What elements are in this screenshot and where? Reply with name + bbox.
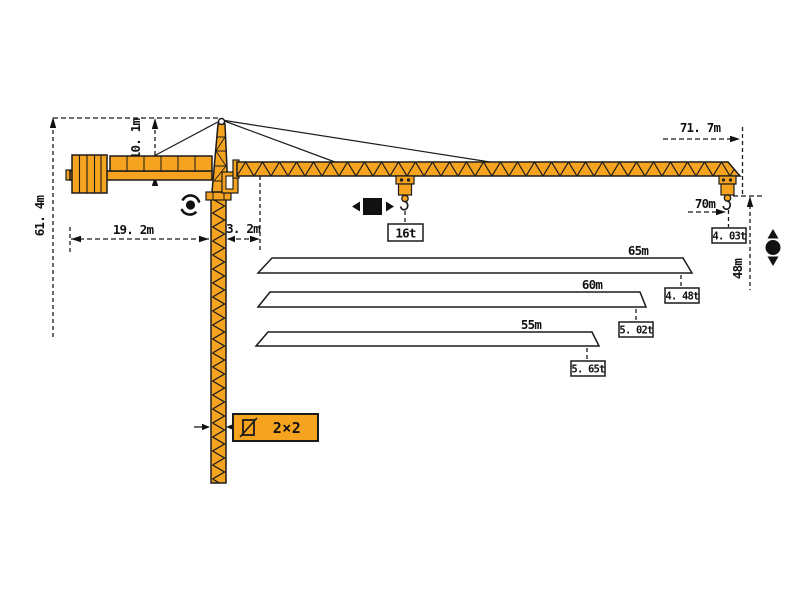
hoist-up-down-icon — [766, 229, 781, 266]
main-jib — [233, 160, 740, 178]
jib-variant-bar — [258, 292, 646, 307]
jib-root-offset-label: 3. 2m — [226, 221, 261, 236]
counterweight-blocks — [72, 155, 107, 193]
jib-variant-load: 5. 02t — [619, 325, 653, 337]
max-load-callout: 16t — [388, 224, 423, 241]
jib-variant-length: 60m — [582, 277, 603, 292]
head-height-label: 10. 1m — [128, 118, 143, 160]
hook — [723, 201, 730, 209]
trolley-travel-icon — [352, 198, 394, 215]
tower-mast — [211, 199, 226, 483]
jib-variant-55m: 55m 5. 65t — [256, 317, 605, 376]
hook-pulley — [724, 195, 730, 201]
hook-pulley — [402, 195, 408, 201]
crane-diagram-page: 61. 4m 10. 1m 19. 2m 3. 2m 71. 7m 70m 4 — [0, 0, 800, 600]
dimension-main-jib-length: 70m — [688, 196, 726, 215]
tip-load-label: 4. 03t — [712, 231, 746, 243]
jib-variant-bar — [258, 258, 692, 273]
mast-cross-section-icon — [240, 418, 257, 437]
jib-variant-length: 65m — [628, 243, 649, 258]
pendant-anchor — [219, 119, 225, 125]
hook-height-label: 48m — [730, 258, 745, 279]
trolley-mid — [396, 176, 414, 223]
mast-section-label: 2×2 — [273, 419, 302, 437]
crane-diagram: 61. 4m 10. 1m 19. 2m 3. 2m 71. 7m 70m 4 — [0, 0, 800, 600]
jib-variant-bar — [256, 332, 599, 346]
overall-reach-label: 71. 7m — [680, 120, 722, 135]
total-height-label: 61. 4m — [32, 195, 47, 237]
counterjib-radius-label: 19. 2m — [113, 222, 155, 237]
slewing-rotation-icon — [182, 195, 199, 214]
main-jib-length-label: 70m — [695, 196, 716, 211]
dimension-counterjib-radius: 19. 2m — [70, 222, 209, 255]
jib-variant-60m: 60m 5. 02t — [258, 277, 653, 337]
hook — [401, 202, 408, 210]
max-load-label: 16t — [395, 226, 415, 241]
jib-variant-load: 5. 65t — [571, 364, 605, 376]
jib-variant-length: 55m — [521, 317, 542, 332]
jib-variant-load: 4. 48t — [665, 291, 699, 303]
tip-load-callout: 4. 03t — [712, 228, 746, 243]
trolley-tip — [719, 176, 736, 227]
